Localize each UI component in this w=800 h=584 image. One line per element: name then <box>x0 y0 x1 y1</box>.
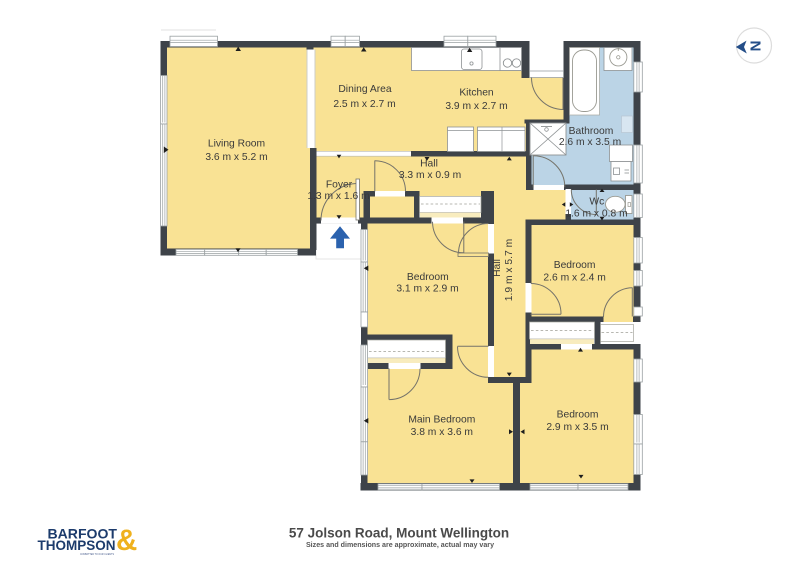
svg-text:Hall: Hall <box>420 159 438 170</box>
svg-text:THOMPSON: THOMPSON <box>38 537 116 553</box>
svg-text:3.9 m x 2.7 m: 3.9 m x 2.7 m <box>445 101 507 112</box>
svg-text:2.6 m x 2.4 m: 2.6 m x 2.4 m <box>543 273 605 284</box>
svg-text:N: N <box>747 41 764 52</box>
svg-text:Sizes and dimensions are appro: Sizes and dimensions are approximate, ac… <box>306 541 494 549</box>
svg-text:Bathroom: Bathroom <box>569 126 614 137</box>
svg-text:COMMITTED TO OUR CLIENTS: COMMITTED TO OUR CLIENTS <box>80 552 114 556</box>
svg-text:1.9 m x 5.7 m: 1.9 m x 5.7 m <box>504 239 515 301</box>
svg-text:3.1 m x 2.9 m: 3.1 m x 2.9 m <box>396 283 458 294</box>
svg-text:Bedroom: Bedroom <box>407 272 449 283</box>
svg-text:Bedroom: Bedroom <box>557 409 599 420</box>
svg-text:Dining Area: Dining Area <box>338 84 392 95</box>
svg-text:Foyer: Foyer <box>326 180 353 191</box>
svg-text:3.3 m x 0.9 m: 3.3 m x 0.9 m <box>399 170 461 181</box>
svg-text:1.3 m x 1.6 m: 1.3 m x 1.6 m <box>307 191 369 202</box>
svg-text:3.8 m x 3.6 m: 3.8 m x 3.6 m <box>411 427 473 438</box>
svg-text:Main Bedroom: Main Bedroom <box>408 415 475 426</box>
svg-text:2.5 m x 2.7 m: 2.5 m x 2.7 m <box>333 99 395 110</box>
svg-text:3.6 m x 5.2 m: 3.6 m x 5.2 m <box>205 152 267 163</box>
svg-text:Kitchen: Kitchen <box>459 88 494 99</box>
svg-text:1.6 m x 0.8 m: 1.6 m x 0.8 m <box>565 209 627 220</box>
svg-text:Bedroom: Bedroom <box>554 260 596 271</box>
svg-text:Wc: Wc <box>589 197 604 208</box>
svg-text:Hall: Hall <box>492 259 503 277</box>
svg-text:2.9 m x 3.5 m: 2.9 m x 3.5 m <box>546 422 608 433</box>
svg-text:2.6 m x 3.5 m: 2.6 m x 3.5 m <box>559 137 621 148</box>
svg-text:&: & <box>116 524 137 557</box>
svg-text:Living Room: Living Room <box>208 138 265 149</box>
svg-text:57 Jolson Road, Mount Wellingt: 57 Jolson Road, Mount Wellington <box>289 525 509 540</box>
